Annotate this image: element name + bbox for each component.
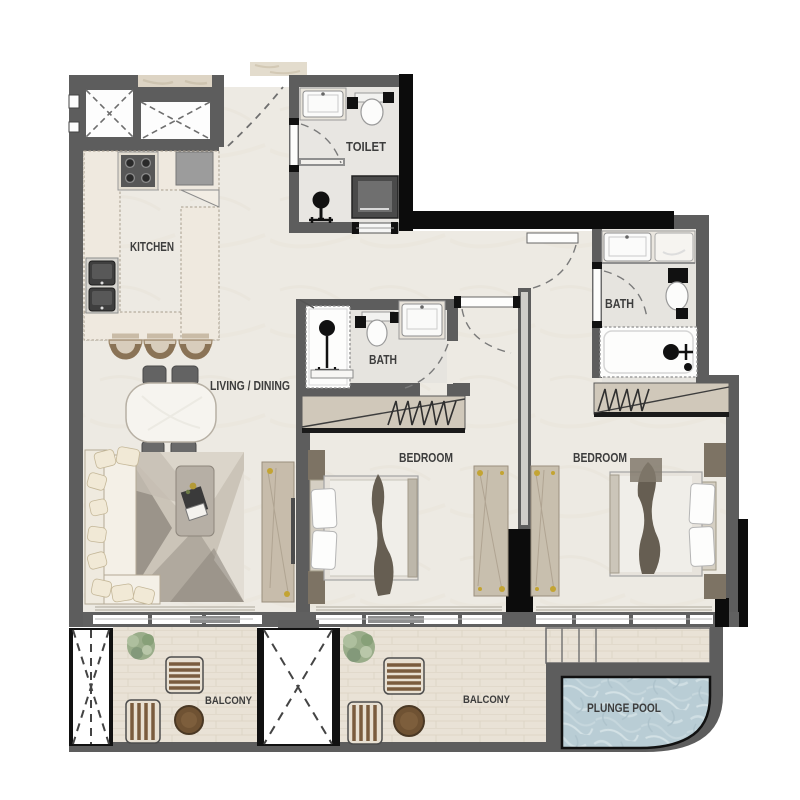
svg-text:PLUNGE POOL: PLUNGE POOL	[587, 701, 661, 715]
svg-text:BEDROOM: BEDROOM	[573, 451, 627, 465]
svg-text:KITCHEN: KITCHEN	[130, 240, 174, 254]
svg-text:BATH: BATH	[369, 352, 397, 367]
svg-text:BEDROOM: BEDROOM	[399, 451, 453, 465]
svg-text:LIVING / DINING: LIVING / DINING	[210, 378, 290, 393]
svg-text:BATH: BATH	[605, 297, 634, 311]
svg-text:BALCONY: BALCONY	[205, 695, 253, 707]
svg-text:TOILET: TOILET	[346, 140, 386, 154]
svg-text:BALCONY: BALCONY	[463, 694, 511, 706]
